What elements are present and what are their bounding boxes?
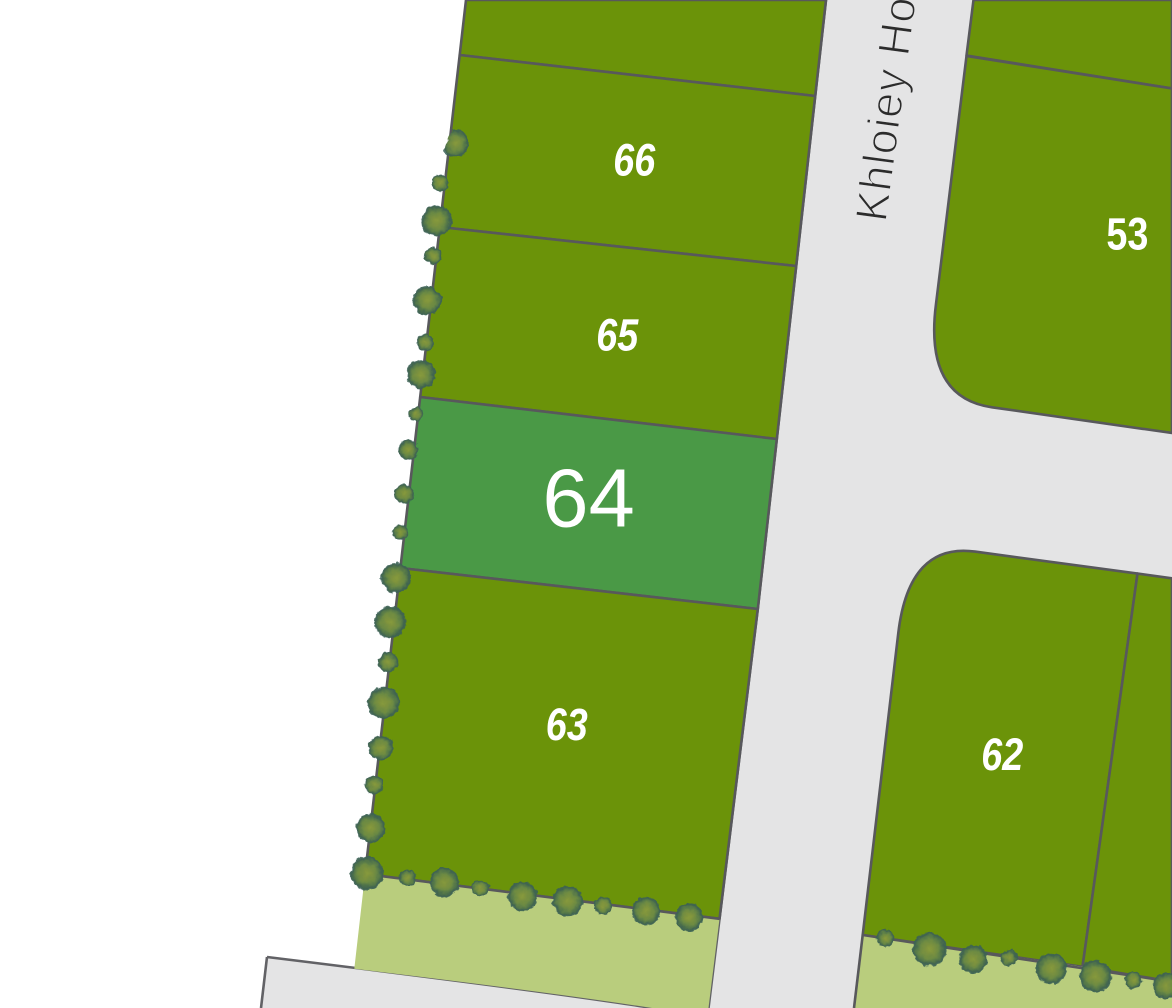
svg-text:66: 66 (613, 135, 656, 186)
svg-text:62: 62 (981, 729, 1023, 780)
svg-text:65: 65 (596, 310, 639, 361)
svg-text:53: 53 (1106, 209, 1148, 260)
svg-text:63: 63 (546, 699, 588, 750)
svg-text:64: 64 (542, 452, 634, 545)
